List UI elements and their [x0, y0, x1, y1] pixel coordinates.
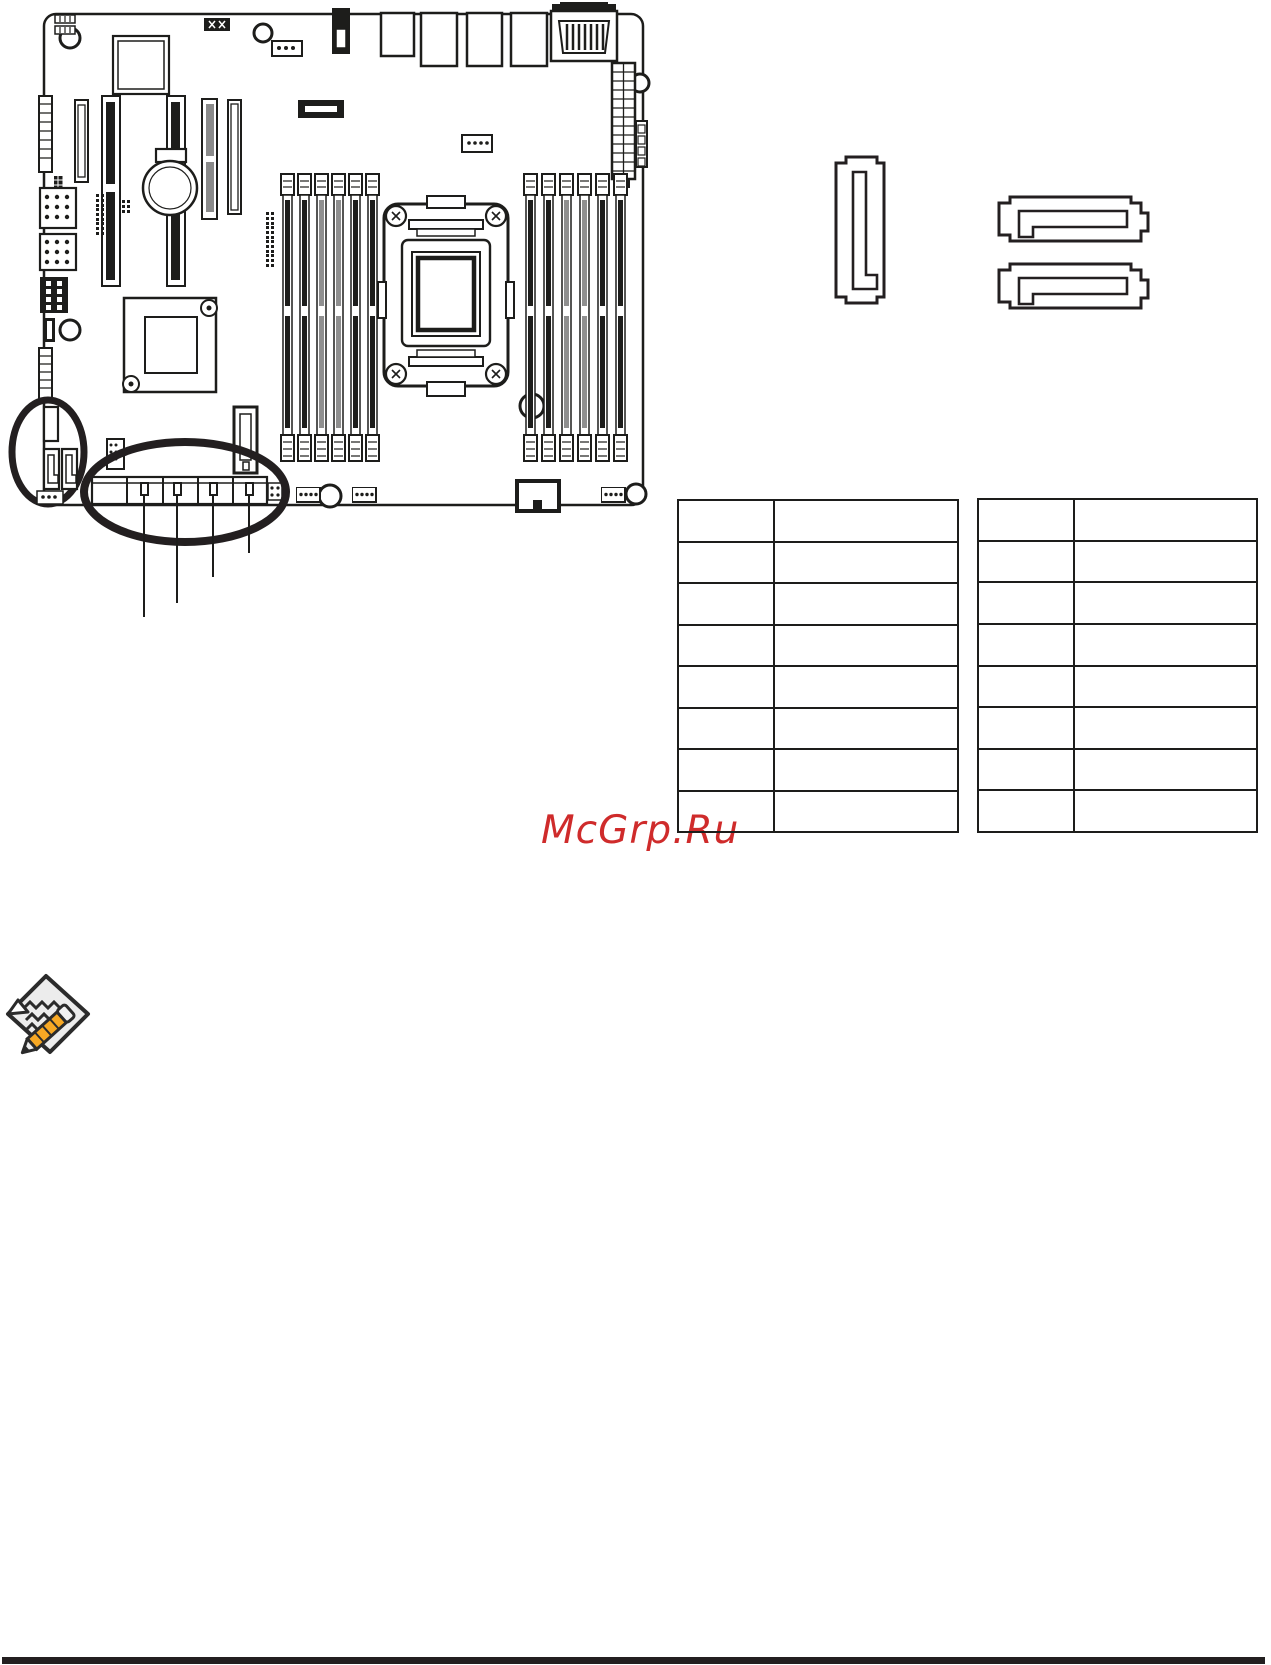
table-cell	[978, 790, 1074, 832]
table-cell	[774, 666, 958, 708]
table-cell	[1074, 541, 1257, 583]
table-cell	[774, 749, 958, 791]
pin-table-left-body	[678, 500, 958, 832]
table-cell	[774, 500, 958, 542]
table-row	[978, 582, 1257, 624]
sata-port-row	[92, 477, 282, 504]
table-row	[678, 749, 958, 791]
table-cell	[1074, 790, 1257, 832]
table-row	[978, 624, 1257, 666]
table-cell	[978, 749, 1074, 791]
table-cell	[1074, 499, 1257, 541]
table-cell	[678, 666, 774, 708]
table-row	[978, 749, 1257, 791]
table-cell	[978, 582, 1074, 624]
table-row	[978, 541, 1257, 583]
table-cell	[978, 624, 1074, 666]
table-cell	[978, 499, 1074, 541]
table-cell	[1074, 749, 1257, 791]
table-cell	[774, 625, 958, 667]
table-cell	[678, 583, 774, 625]
table-cell	[774, 583, 958, 625]
table-row	[978, 499, 1257, 541]
table-cell	[774, 791, 958, 833]
table-cell	[678, 500, 774, 542]
table-row	[678, 500, 958, 542]
table-cell	[978, 666, 1074, 708]
front-panel-block	[517, 481, 559, 511]
table-row	[678, 542, 958, 584]
vga-port	[551, 2, 617, 61]
sata-connector-top-view-1	[999, 197, 1148, 241]
table-cell	[678, 749, 774, 791]
edge-side-connector	[636, 121, 647, 167]
table-row	[978, 666, 1257, 708]
table-row	[678, 625, 958, 667]
atx-24pin-connector	[612, 63, 635, 187]
note-pencil-icon	[8, 976, 88, 1059]
table-cell	[678, 708, 774, 750]
table-row	[978, 790, 1257, 832]
pin-table-right-body	[978, 499, 1257, 832]
leader-lines	[144, 494, 249, 617]
table-cell	[1074, 582, 1257, 624]
small-header-mid	[462, 135, 492, 152]
table-cell	[978, 707, 1074, 749]
cpu-socket	[378, 196, 514, 396]
pch-heatsink	[123, 298, 217, 392]
table-row	[678, 708, 958, 750]
bottom-rule	[2, 1657, 1265, 1664]
table-row	[678, 666, 958, 708]
table-cell	[678, 625, 774, 667]
table-cell	[978, 541, 1074, 583]
manual-page: McGrp.Ru	[0, 0, 1271, 1665]
sata-connector-side-view	[836, 157, 884, 303]
table-cell	[1074, 624, 1257, 666]
table-row	[678, 583, 958, 625]
table-cell	[1074, 666, 1257, 708]
table-cell	[678, 791, 774, 833]
super-io-chip	[113, 36, 169, 94]
table-cell	[774, 542, 958, 584]
table-cell	[1074, 707, 1257, 749]
internal-connector-dark	[298, 100, 344, 118]
table-row	[978, 707, 1257, 749]
pin-table-right	[977, 498, 1258, 833]
table-cell	[678, 542, 774, 584]
pin-table-left	[677, 499, 959, 833]
sata-connector-top-view-2	[999, 264, 1148, 308]
usb3-header	[234, 407, 257, 473]
table-row	[678, 791, 958, 833]
table-cell	[774, 708, 958, 750]
